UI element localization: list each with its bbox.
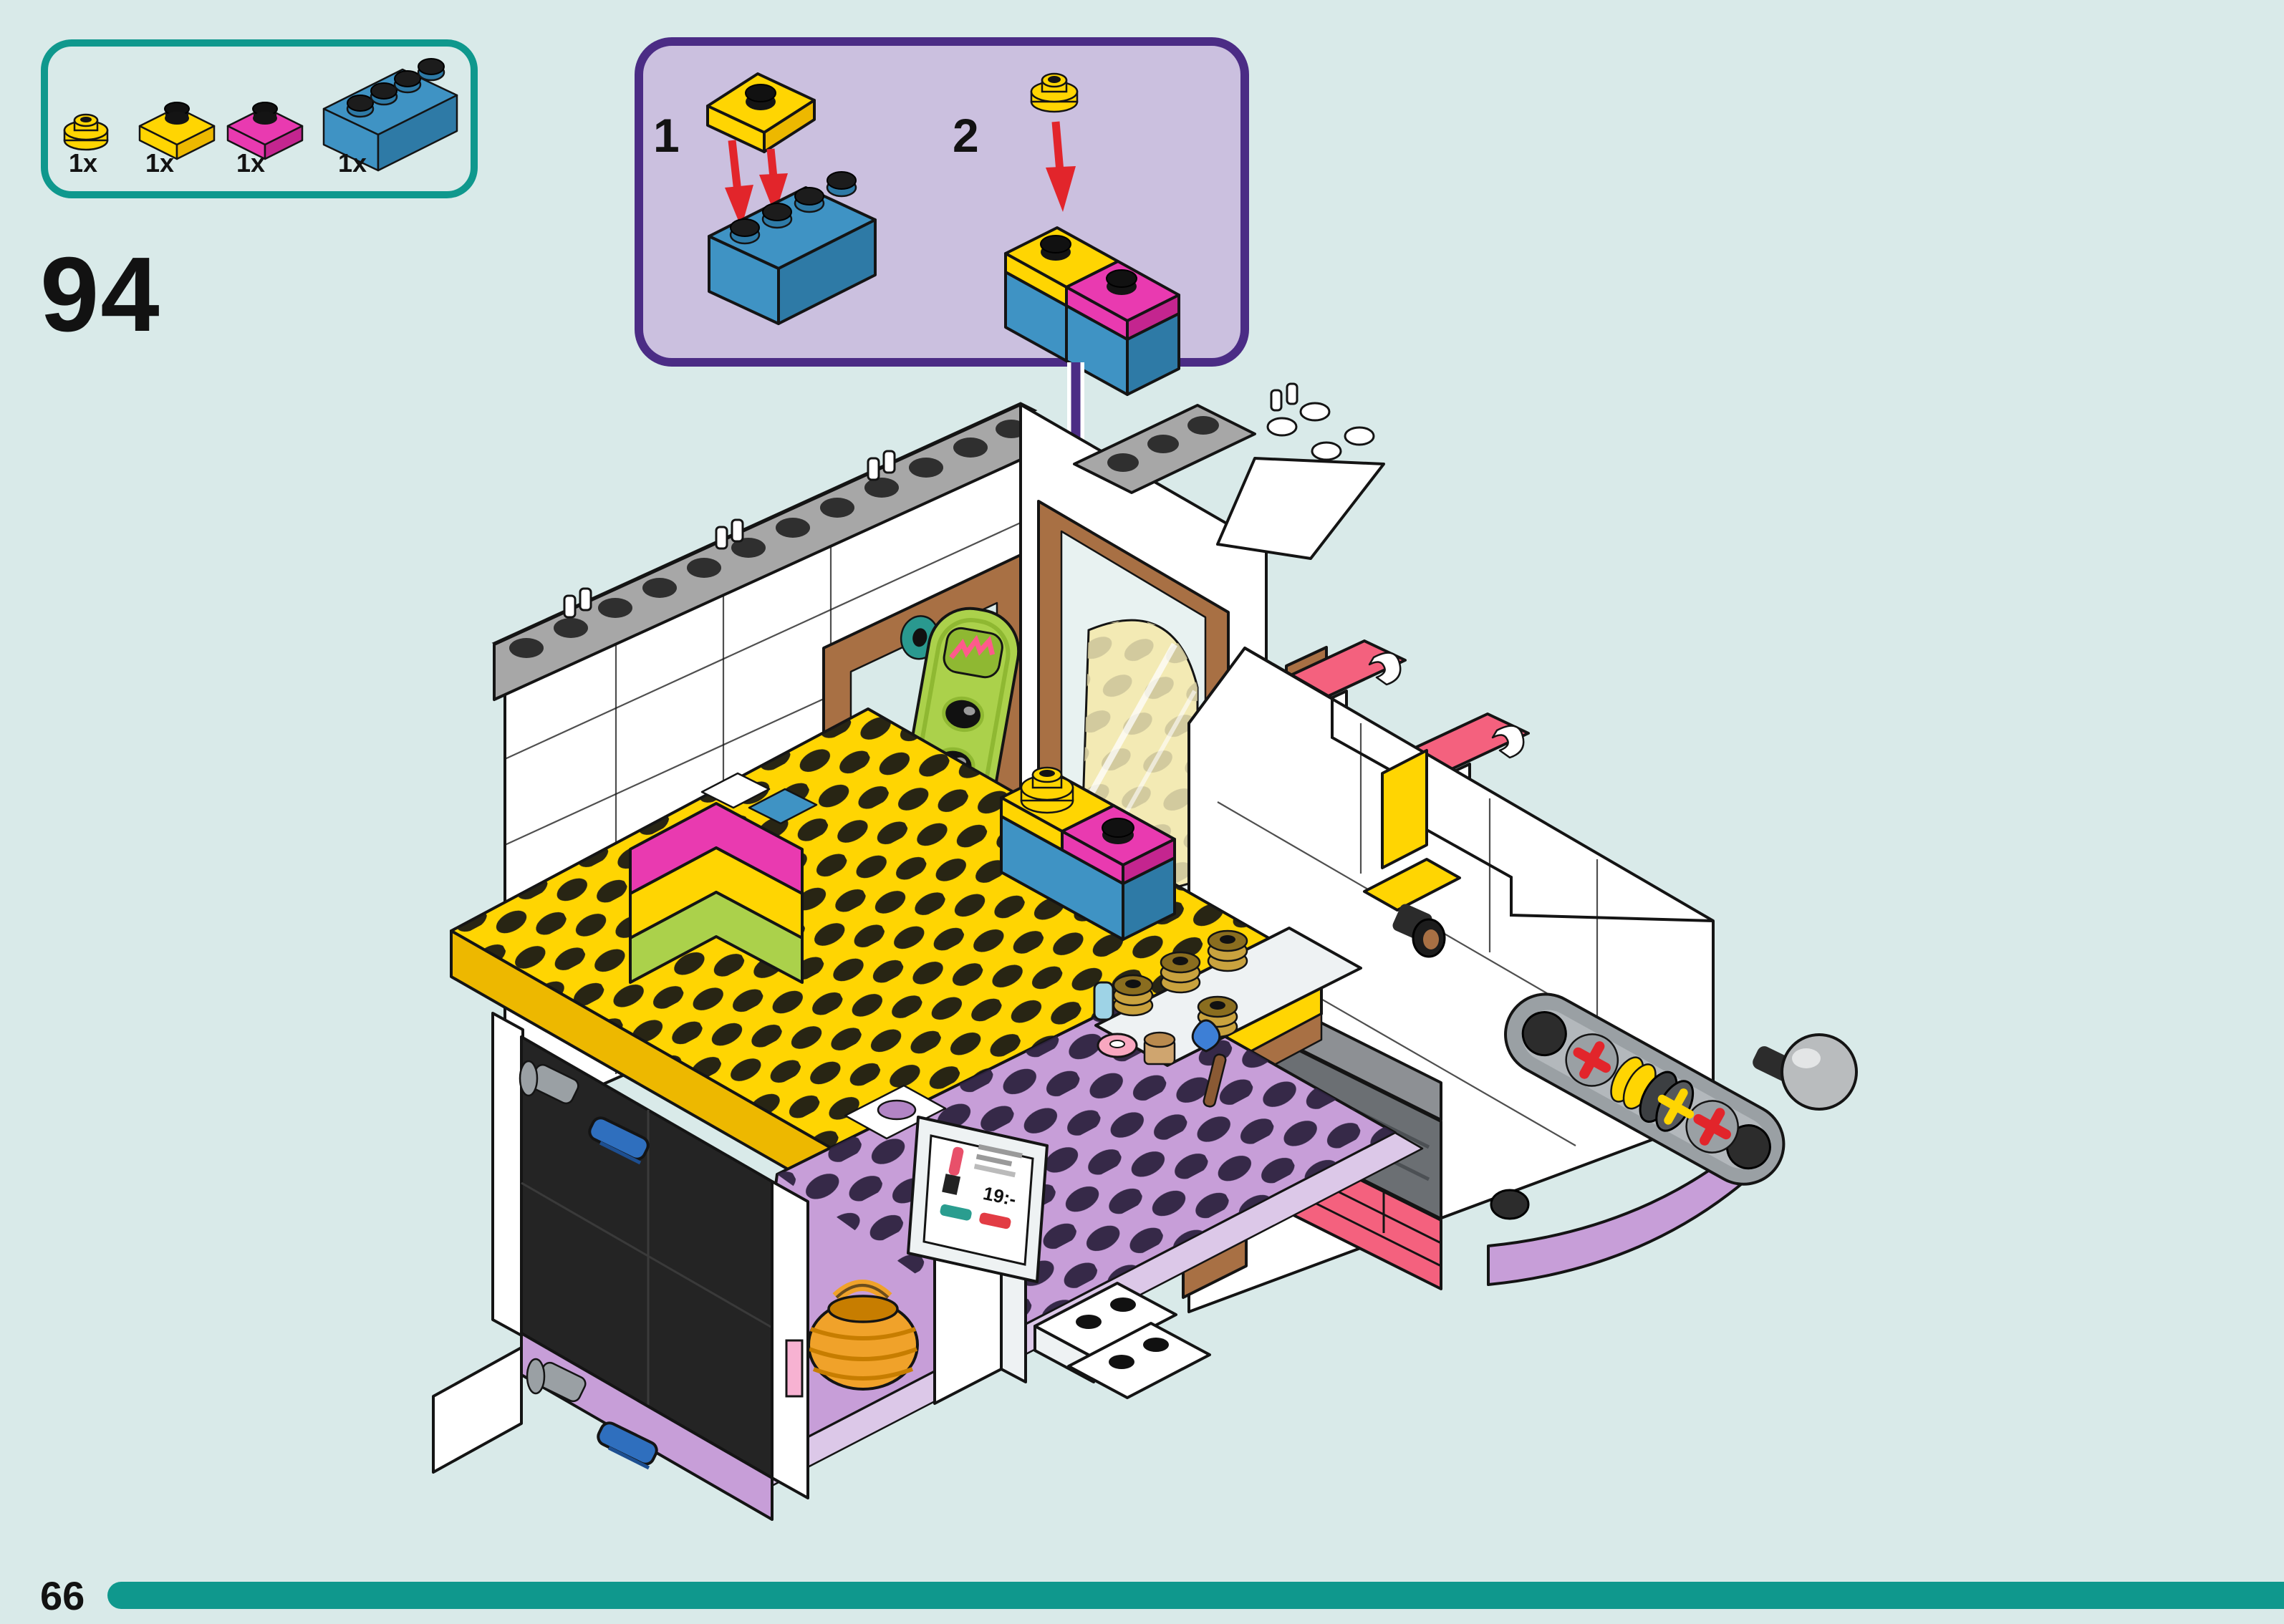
black-pin — [1491, 1190, 1528, 1219]
part-qty: 1x — [145, 148, 174, 178]
callout-step-2-label: 2 — [953, 109, 979, 162]
callout-step-1-label: 1 — [653, 109, 680, 162]
step-number: 94 — [40, 236, 161, 354]
part-qty: 1x — [338, 148, 367, 178]
assembly-callout: 1 2 — [639, 42, 1245, 395]
pink-donut — [1098, 1034, 1137, 1057]
part-qty: 1x — [236, 148, 265, 178]
blue-bottle — [1192, 1020, 1220, 1051]
progress-bar — [107, 1582, 2284, 1609]
white-column-left — [493, 1013, 523, 1336]
lightblue-bottle — [1094, 982, 1113, 1020]
pink-sliver — [786, 1340, 802, 1396]
tan-cup — [1145, 1033, 1175, 1064]
part-qty: 1x — [69, 148, 97, 178]
page-number: 66 — [40, 1573, 85, 1618]
parts-panel: 1x 1x 1x — [44, 43, 474, 195]
instruction-page: 1x 1x 1x — [0, 0, 2284, 1624]
